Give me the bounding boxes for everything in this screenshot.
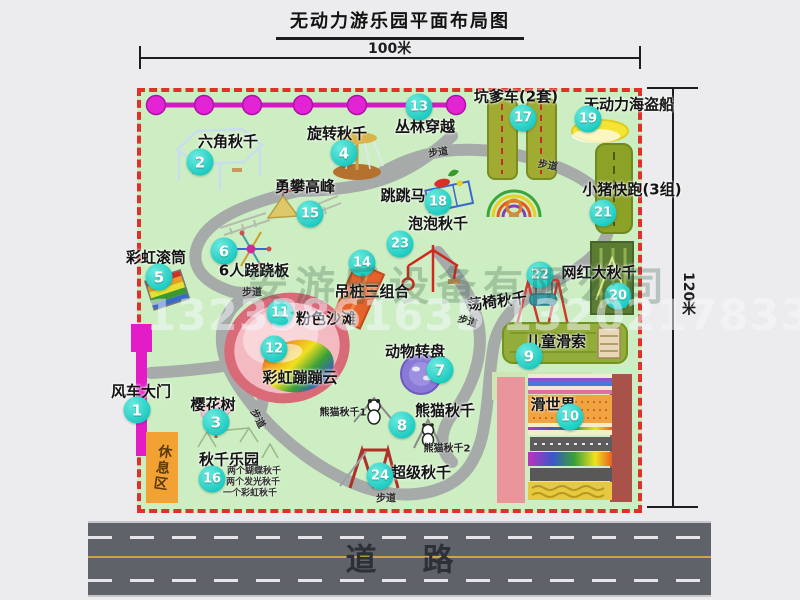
page-title: 无动力游乐园平面布局图 [276, 7, 524, 40]
attraction-2-badge: 2 [187, 149, 214, 176]
attraction-21-badge: 21 [590, 200, 617, 227]
attraction-24-label: 超级秋千 [391, 462, 451, 483]
attraction-15-label: 勇攀高峰 [275, 176, 335, 197]
attraction-5-badge: 5 [146, 264, 173, 291]
dimension-label-width: 100米 [368, 38, 411, 58]
attraction-18-badge: 18 [425, 189, 452, 216]
attraction-17-label: 坑爹车(2套) [474, 86, 558, 107]
attraction-8-badge: 8 [389, 412, 416, 439]
attraction-12-label: 彩虹蹦蹦云 [262, 367, 337, 388]
attraction-15-badge: 15 [297, 201, 324, 228]
attraction-1-badge: 1 [124, 397, 151, 424]
trail-label-0: 步道 [427, 142, 449, 160]
rest-area: 休息区 [146, 432, 178, 503]
dimension-tick-right-bottom [647, 506, 698, 508]
dimension-tick-top-left [139, 46, 141, 69]
attraction-2-label: 六角秋千 [198, 131, 258, 152]
attraction-6-badge: 6 [211, 238, 238, 265]
park-plan-screenshot: 无动力游乐园平面布局图 100米 120米 [0, 0, 800, 600]
attraction-8-label: 熊猫秋千 [415, 400, 475, 421]
watermark-phone: 13233861635 13202178333 [146, 291, 800, 341]
attraction-18-label: 跳跳马 [380, 185, 425, 206]
attraction-21-label: 小猪快跑(3组) [582, 179, 681, 200]
attraction-19-badge: 19 [575, 106, 602, 133]
attraction-10-badge: 10 [557, 404, 584, 431]
road: 道路 [88, 521, 711, 597]
dimension-tick-top-right [639, 46, 641, 69]
swing-park-note-2: 一个彩虹秋千 [223, 486, 277, 499]
road-label: 道路 [88, 535, 711, 580]
attraction-9-badge: 9 [516, 343, 543, 370]
sub-label-0: 熊猫秋千1 [320, 404, 367, 419]
attraction-3-badge: 3 [203, 409, 230, 436]
trail-label-5: 步道 [376, 490, 396, 505]
attraction-7-badge: 7 [427, 357, 454, 384]
attraction-13-badge: 13 [406, 94, 433, 121]
attraction-17-badge: 17 [510, 105, 537, 132]
attraction-24-badge: 24 [367, 463, 394, 490]
trail-label-1: 步道 [537, 155, 559, 173]
attraction-16-badge: 16 [199, 466, 226, 493]
sub-label-1: 熊猫秋千2 [424, 440, 471, 455]
attraction-23-label: 泡泡秋千 [408, 213, 468, 234]
attraction-4-badge: 4 [331, 140, 358, 167]
dimension-tick-right-top [647, 87, 698, 89]
rest-area-label: 休息区 [149, 442, 175, 492]
